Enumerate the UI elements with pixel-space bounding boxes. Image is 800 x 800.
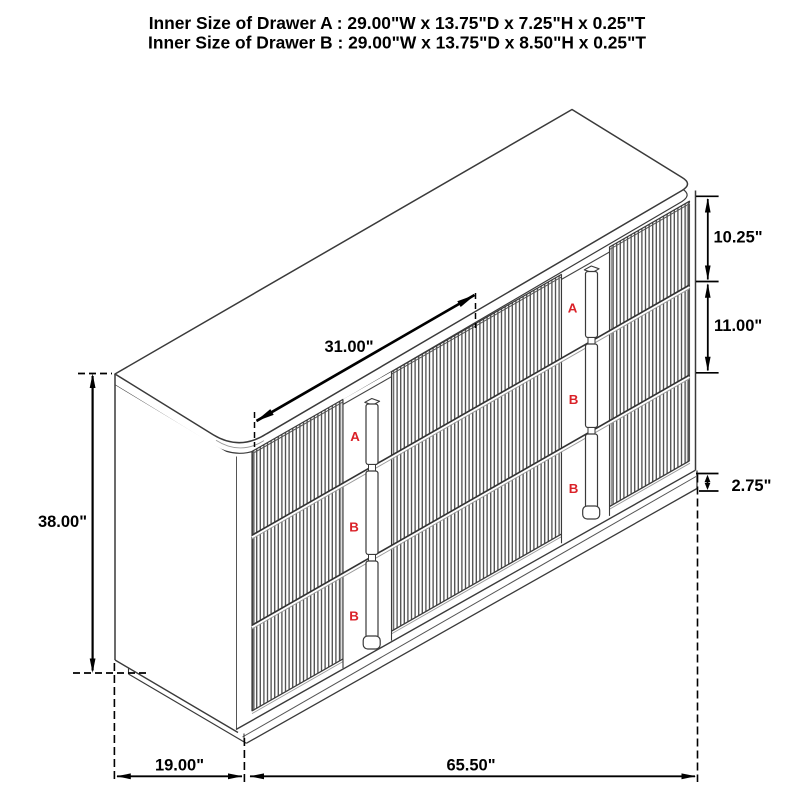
svg-text:B: B: [569, 392, 579, 407]
svg-text:A: A: [350, 429, 360, 444]
svg-text:31.00": 31.00": [324, 338, 373, 356]
svg-text:11.00": 11.00": [714, 317, 762, 335]
svg-text:Inner Size of Drawer A : 29.00: Inner Size of Drawer A : 29.00"W x 13.75…: [149, 13, 646, 33]
svg-text:B: B: [349, 520, 359, 535]
svg-text:B: B: [569, 481, 579, 496]
svg-text:B: B: [349, 609, 359, 624]
svg-text:Inner Size of Drawer B : 29.00: Inner Size of Drawer B : 29.00"W x 13.75…: [148, 33, 646, 53]
svg-text:19.00": 19.00": [155, 756, 204, 774]
svg-text:A: A: [568, 301, 578, 316]
svg-text:38.00": 38.00": [38, 513, 87, 531]
svg-text:2.75": 2.75": [732, 477, 772, 495]
svg-text:65.50": 65.50": [446, 756, 495, 774]
svg-text:10.25": 10.25": [714, 229, 763, 247]
